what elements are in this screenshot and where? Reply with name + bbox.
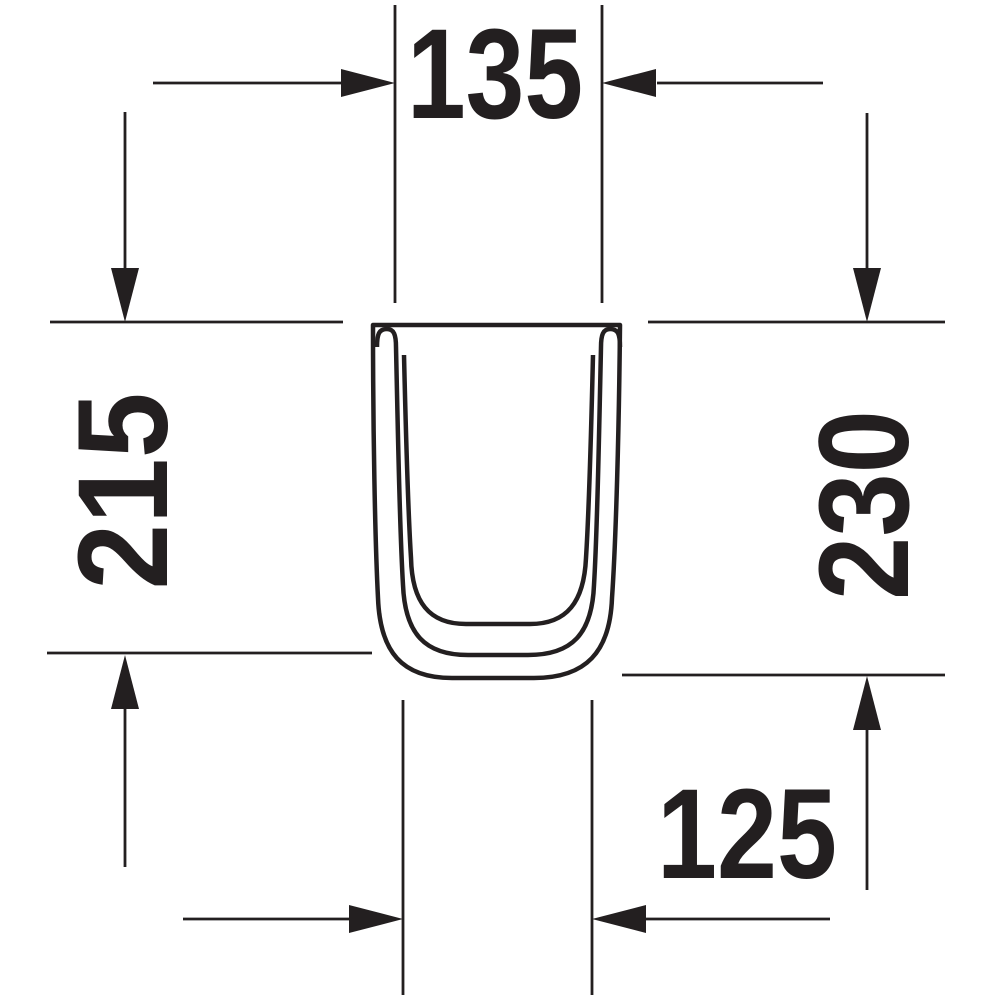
arrowhead-up-icon (111, 655, 139, 709)
arrowhead-down-icon (853, 268, 881, 322)
dimension-label-bottom-width: 125 (657, 763, 837, 906)
dimension-bottom-width: 125 (183, 763, 837, 933)
fixture-outline (373, 325, 620, 678)
dimension-label-top-width: 135 (407, 3, 583, 146)
arrowhead-left-icon (592, 905, 646, 933)
dimension-left-height: 215 (52, 112, 195, 867)
arrowhead-up-icon (853, 676, 881, 730)
arrowhead-down-icon (111, 268, 139, 322)
drawing-svg: 135 215 230 125 (0, 0, 1000, 1000)
arrowhead-right-icon (341, 69, 395, 97)
arrowhead-left-icon (602, 69, 656, 97)
dimension-label-left-height: 215 (52, 393, 195, 590)
dimension-label-right-height: 230 (793, 410, 936, 600)
arrowhead-right-icon (349, 905, 403, 933)
dimension-drawing: 135 215 230 125 (0, 0, 1000, 1000)
dimension-top-width: 135 (153, 3, 823, 146)
